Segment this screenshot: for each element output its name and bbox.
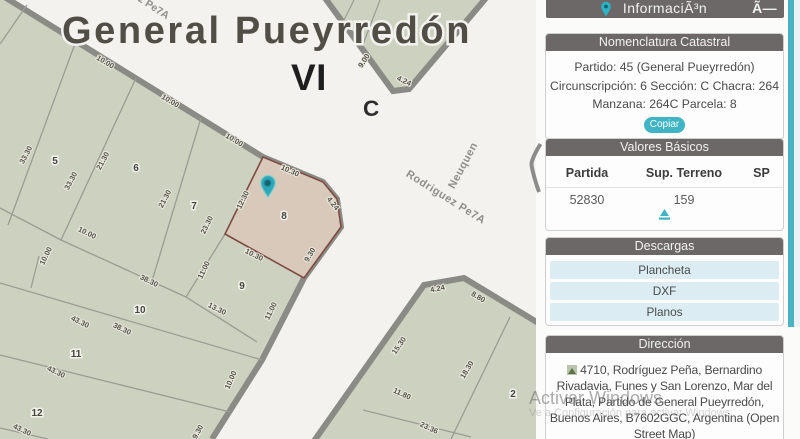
svg-text:12: 12 (31, 408, 43, 419)
svg-text:VI: VI (291, 57, 327, 98)
svg-text:8: 8 (281, 211, 287, 222)
svg-text:C: C (363, 96, 379, 121)
svg-text:7: 7 (191, 201, 197, 212)
svg-text:10: 10 (134, 305, 146, 316)
svg-text:5: 5 (52, 156, 58, 167)
svg-text:11: 11 (71, 349, 82, 360)
svg-text:9: 9 (239, 281, 245, 292)
svg-text:2: 2 (510, 389, 516, 400)
svg-text:6: 6 (133, 163, 139, 174)
svg-text:General Pueyrredón: General Pueyrredón (62, 10, 472, 52)
